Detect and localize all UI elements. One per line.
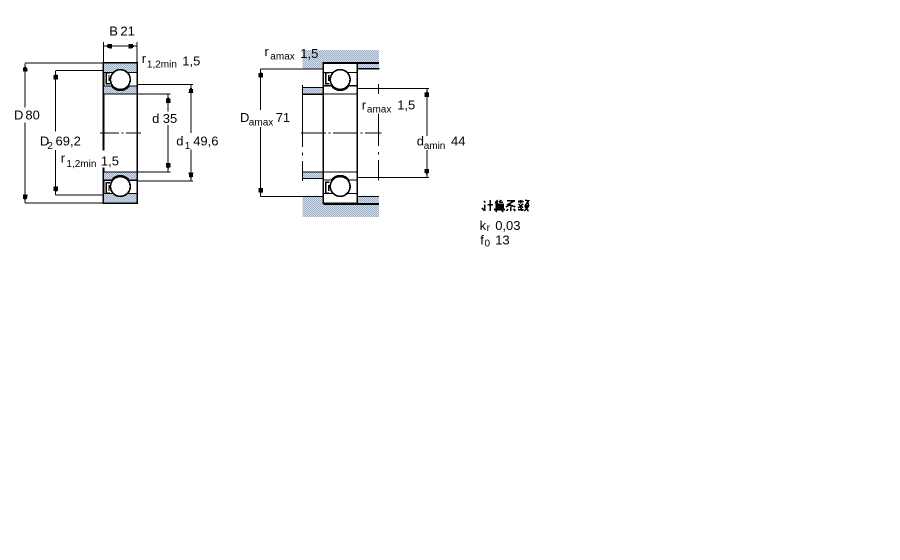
svg-text:1,5: 1,5 bbox=[300, 46, 318, 61]
svg-text:amax: amax bbox=[270, 52, 294, 63]
svg-text:49,6: 49,6 bbox=[193, 134, 218, 149]
svg-text:r: r bbox=[61, 151, 66, 166]
svg-text:1,5: 1,5 bbox=[101, 154, 119, 169]
svg-text:44: 44 bbox=[451, 133, 465, 148]
svg-text:1: 1 bbox=[185, 141, 191, 152]
svg-text:35: 35 bbox=[163, 111, 177, 126]
svg-text:r: r bbox=[265, 44, 270, 59]
svg-text:1,2min: 1,2min bbox=[66, 159, 96, 170]
svg-text:2: 2 bbox=[47, 141, 53, 152]
svg-text:0: 0 bbox=[485, 238, 491, 249]
svg-text:1,5: 1,5 bbox=[182, 54, 200, 69]
svg-text:71: 71 bbox=[276, 110, 290, 125]
svg-text:d: d bbox=[176, 134, 183, 149]
svg-text:13: 13 bbox=[495, 233, 509, 248]
svg-text:amax: amax bbox=[249, 118, 273, 129]
svg-text:B: B bbox=[109, 24, 118, 39]
svg-text:amax: amax bbox=[367, 105, 391, 116]
svg-text:1,2min: 1,2min bbox=[147, 60, 177, 71]
svg-text:amin: amin bbox=[424, 141, 446, 152]
svg-text:21: 21 bbox=[120, 24, 134, 39]
svg-text:0,03: 0,03 bbox=[495, 218, 520, 233]
svg-text:d: d bbox=[152, 111, 159, 126]
svg-text:k: k bbox=[480, 218, 487, 233]
svg-text:80: 80 bbox=[25, 108, 39, 123]
svg-text:D: D bbox=[14, 108, 23, 123]
svg-text:1,5: 1,5 bbox=[397, 97, 415, 112]
svg-text:69,2: 69,2 bbox=[56, 133, 81, 148]
